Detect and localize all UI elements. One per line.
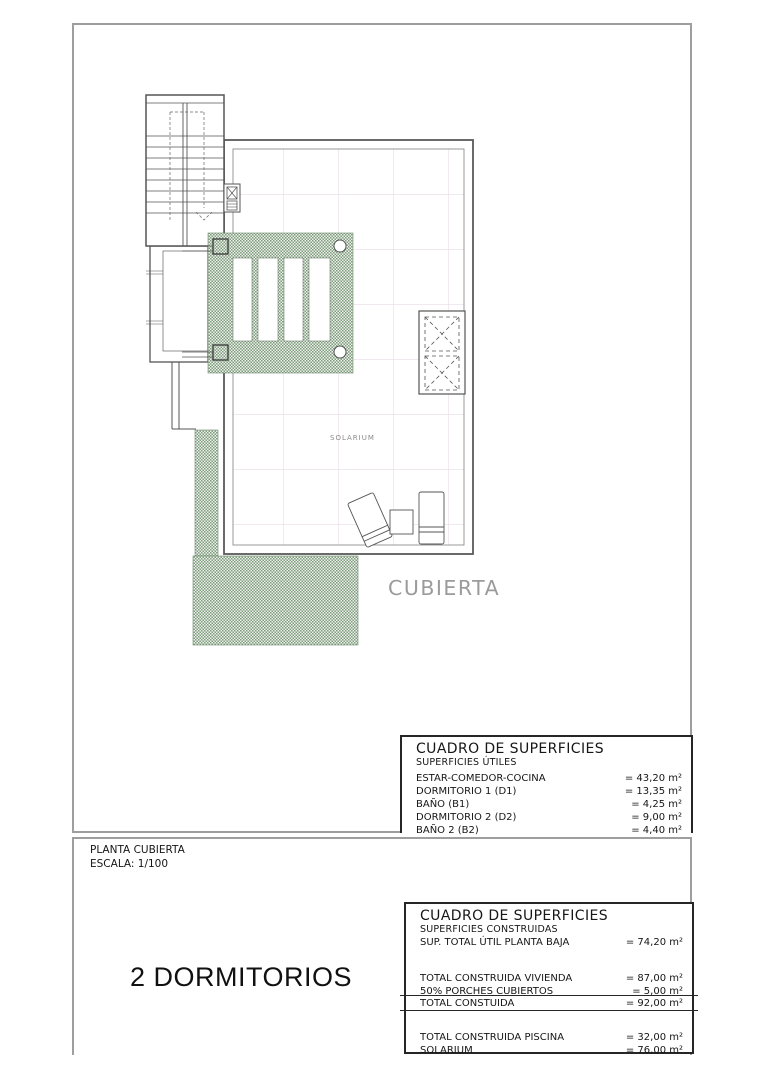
table-subtitle: SUPERFICIES ÚTILES — [416, 757, 517, 768]
plan-name: PLANTA CUBIERTA — [90, 843, 185, 857]
table-row: SUP. TOTAL ÚTIL PLANTA BAJA= 74,20 m² — [420, 937, 683, 948]
table-row: TOTAL CONSTRUIDA PISCINA= 32,00 m² — [420, 1032, 683, 1043]
surface-table-utiles: CUADRO DE SUPERFICIES SUPERFICIES ÚTILES… — [400, 735, 693, 833]
pergola-post-circle-tr — [334, 240, 346, 252]
vent-shaft — [224, 184, 240, 212]
table-title: CUADRO DE SUPERFICIES — [420, 908, 608, 924]
table-row: DORMITORIO 1 (D1)= 13,35 m² — [416, 786, 682, 797]
cubierta-label: CUBIERTA — [388, 576, 500, 600]
pergola-post-circle-br — [334, 346, 346, 358]
variant-title: 2 DORMITORIOS — [130, 962, 352, 993]
table-row-total: TOTAL CONSTUIDA= 92,00 m² — [420, 998, 683, 1009]
surface-table-construidas: CUADRO DE SUPERFICIES SUPERFICIES CONSTR… — [404, 902, 694, 1054]
table-row: ESTAR-COMEDOR-COCINA= 43,20 m² — [416, 773, 682, 784]
table-row: BAÑO 2 (B2)= 4,40 m² — [416, 825, 682, 836]
table-row: SOLARIUM= 76,00 m² — [420, 1045, 683, 1056]
table-row: TOTAL CONSTRUIDA VIVIENDA= 87,00 m² — [420, 973, 683, 984]
table-subtitle: SUPERFICIES CONSTRUIDAS — [420, 924, 558, 935]
lounger-straight — [419, 492, 444, 544]
side-table — [390, 510, 413, 534]
solarium-label: SOLARIUM — [330, 434, 375, 442]
table-row: DORMITORIO 2 (D2)= 9,00 m² — [416, 812, 682, 823]
skylights — [419, 311, 465, 394]
table-row: BAÑO (B1)= 4,25 m² — [416, 799, 682, 810]
left-terrace — [146, 246, 208, 429]
plan-scale: ESCALA: 1/100 — [90, 857, 185, 871]
table-title: CUADRO DE SUPERFICIES — [416, 741, 604, 757]
staircase — [146, 95, 224, 246]
plan-title-block: PLANTA CUBIERTA ESCALA: 1/100 — [90, 843, 185, 871]
